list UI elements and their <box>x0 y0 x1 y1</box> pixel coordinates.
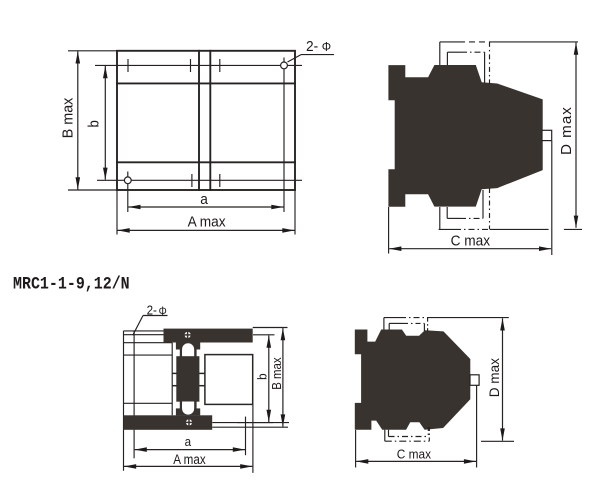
svg-text:a: a <box>200 191 209 208</box>
svg-text:D max: D max <box>487 358 502 397</box>
svg-text:b: b <box>85 120 102 128</box>
svg-text:C max: C max <box>451 233 491 250</box>
svg-text:MRC1-1-9,12/N: MRC1-1-9,12/N <box>13 275 130 294</box>
svg-text:B max: B max <box>269 357 284 389</box>
svg-text:a: a <box>185 434 192 449</box>
svg-text:Φ: Φ <box>322 39 331 54</box>
svg-text:B max: B max <box>60 97 76 138</box>
svg-text:D max: D max <box>558 106 575 155</box>
svg-text:2-: 2- <box>306 38 318 55</box>
svg-text:A max: A max <box>188 214 227 231</box>
svg-text:A max: A max <box>173 452 206 467</box>
svg-text:b: b <box>255 373 270 380</box>
svg-text:C max: C max <box>397 447 432 462</box>
